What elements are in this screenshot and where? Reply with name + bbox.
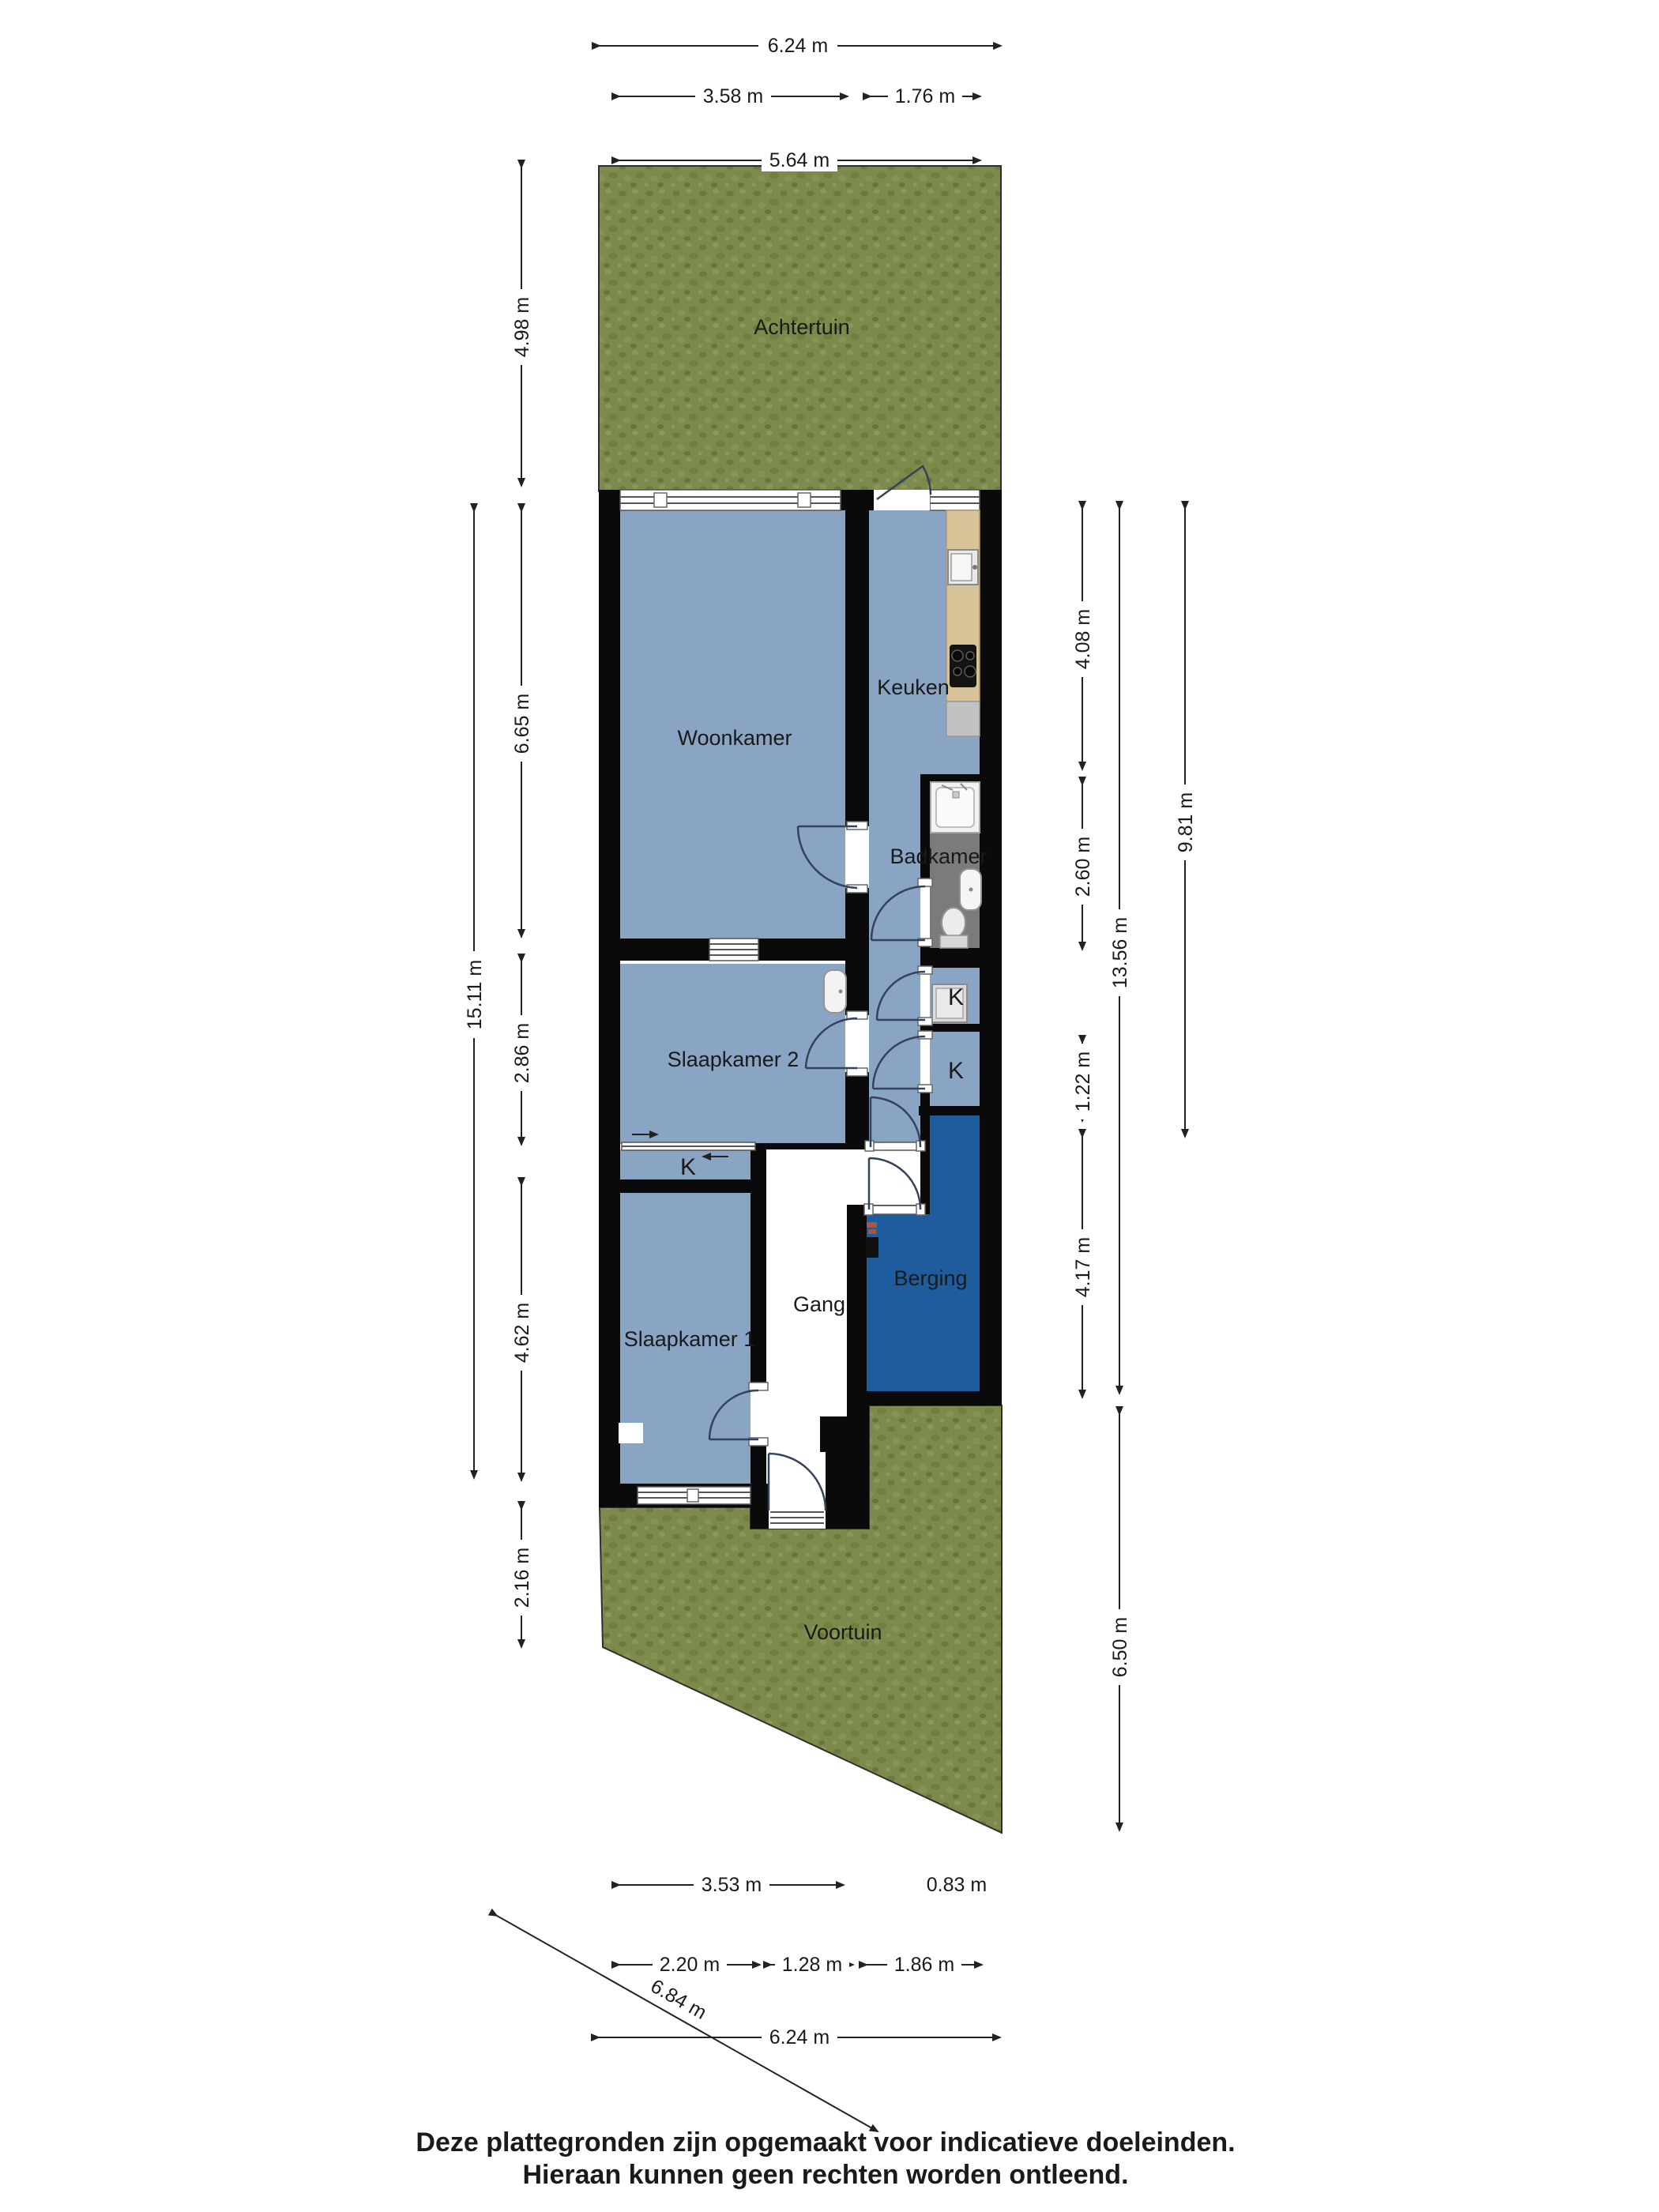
hallway-floor-entry	[769, 1452, 826, 1504]
bathroom-door-opening	[920, 882, 930, 942]
wall-hall-east-sliver	[847, 1405, 869, 1416]
wall-living-kitchen	[845, 510, 869, 826]
dim-label: 13.56 m	[1109, 917, 1131, 988]
room-label-badkamer: Badkamer	[890, 845, 987, 868]
window-mullion	[687, 1489, 698, 1502]
room-label-voortuin: Voortuin	[803, 1620, 882, 1644]
storage-meter-icon	[867, 1222, 877, 1228]
room-label-kast2: K	[948, 1058, 964, 1084]
wall-top-right-corner	[980, 490, 1002, 510]
footer-disclaimer-line1: Deze plattegronden zijn opgemaakt voor i…	[416, 2127, 1235, 2157]
window-mullion	[798, 493, 811, 507]
wall-bathroom-bottom	[920, 948, 986, 968]
dim-label: 4.62 m	[511, 1303, 533, 1363]
wall-living-corridor	[845, 888, 869, 1015]
footer: Deze plattegronden zijn opgemaakt voor i…	[416, 2127, 1235, 2190]
wall-closet1-closet2	[930, 1024, 986, 1032]
bedroom2-door-opening	[845, 1015, 869, 1072]
closet1-door-opening	[920, 970, 930, 1021]
dim-label: 6.65 m	[511, 694, 533, 754]
floorplan-page: Achtertuin Woonkamer Keuken Badkamer Sla…	[0, 0, 1659, 2212]
room-label-woonkamer: Woonkamer	[677, 726, 792, 750]
kitchen-faucet-icon	[972, 565, 977, 570]
dim-label: 3.53 m	[702, 1874, 762, 1896]
dim-label: 2.16 m	[511, 1548, 533, 1608]
wall-closet3-bedroom1	[620, 1179, 766, 1193]
dim-label: 4.17 m	[1072, 1237, 1094, 1297]
bedroom1-door-opening	[750, 1387, 766, 1443]
wall-top-center-pillar	[841, 490, 874, 510]
dim-label: 15.11 m	[464, 960, 486, 1029]
dim-label: 3.58 m	[703, 85, 763, 107]
room-label-achtertuin: Achtertuin	[754, 315, 850, 339]
room-label-kast1: K	[948, 984, 964, 1010]
wall-bedroom2-corridor	[845, 1072, 869, 1149]
dim-label: 4.98 m	[511, 297, 533, 357]
storage-door-sill	[869, 1206, 920, 1214]
wall-hall-west-lower	[750, 1443, 766, 1484]
front-door-opening	[769, 1504, 826, 1529]
dim-label: 0.83 m	[927, 1874, 987, 1896]
bedroom2-basin	[824, 970, 846, 1013]
room-label-keuken: Keuken	[877, 675, 950, 699]
toilet	[942, 908, 965, 938]
dim-label: 5.64 m	[769, 149, 829, 171]
footer-disclaimer-line2: Hieraan kunnen geen rechten worden ontle…	[522, 2160, 1128, 2190]
wall-exterior-right	[980, 490, 1002, 1405]
dim-line-diagonal	[497, 1916, 878, 2131]
closet2-door-opening	[920, 1035, 930, 1090]
kitchen-appliance	[946, 702, 980, 736]
dim-label: 6.24 m	[769, 2026, 829, 2048]
wall-hall-storage	[847, 1205, 867, 1391]
wall-hall-east-lower	[826, 1452, 869, 1529]
room-label-gang: Gang	[793, 1292, 845, 1316]
dim-label: 4.08 m	[1072, 609, 1094, 669]
dim-label: 1.76 m	[895, 85, 955, 107]
wall-hall-east-step	[820, 1416, 869, 1452]
room-label-slaapkamer2: Slaapkamer 2	[668, 1048, 799, 1071]
dim-label: 9.81 m	[1175, 792, 1197, 852]
room-label-kast3: K	[680, 1154, 696, 1180]
dim-label: 6.50 m	[1109, 1617, 1131, 1677]
kitchen-door-opening	[874, 490, 930, 510]
dim-label: 6.24 m	[768, 35, 828, 57]
dim-label: 2.20 m	[660, 1954, 720, 1976]
wall-closet2-storage	[919, 1106, 986, 1115]
dim-label: 1.86 m	[894, 1954, 954, 1976]
dim-label: 1.28 m	[782, 1954, 842, 1976]
wall-front-pillar-mid	[750, 1484, 769, 1529]
wall-bedroom2-hall-thin	[766, 1143, 845, 1149]
hallway-floor-south	[769, 1416, 820, 1452]
dim-label: 1.22 m	[1072, 1051, 1094, 1112]
kitchen-window	[930, 490, 980, 510]
floorplan-drawing: Achtertuin Woonkamer Keuken Badkamer Sla…	[0, 0, 1659, 2212]
room-label-berging: Berging	[893, 1266, 967, 1290]
living-room-door-opening	[845, 826, 869, 888]
storage-cabinet-icon	[866, 1237, 878, 1258]
wall-exterior-left	[599, 490, 620, 1507]
bedroom1-niche	[619, 1423, 643, 1443]
corridor-hall-door-sill	[871, 1142, 920, 1150]
dim-label: 2.60 m	[1072, 837, 1094, 897]
window-mullion	[654, 493, 667, 507]
room-label-slaapkamer1: Slaapkamer 1	[624, 1327, 756, 1351]
wall-top-left-corner	[599, 490, 620, 510]
hallway-floor	[766, 1149, 847, 1416]
dim-label: 6.84 m	[647, 1975, 710, 2024]
dim-label: 2.86 m	[511, 1023, 533, 1083]
wall-storage-bottom	[847, 1391, 1002, 1405]
